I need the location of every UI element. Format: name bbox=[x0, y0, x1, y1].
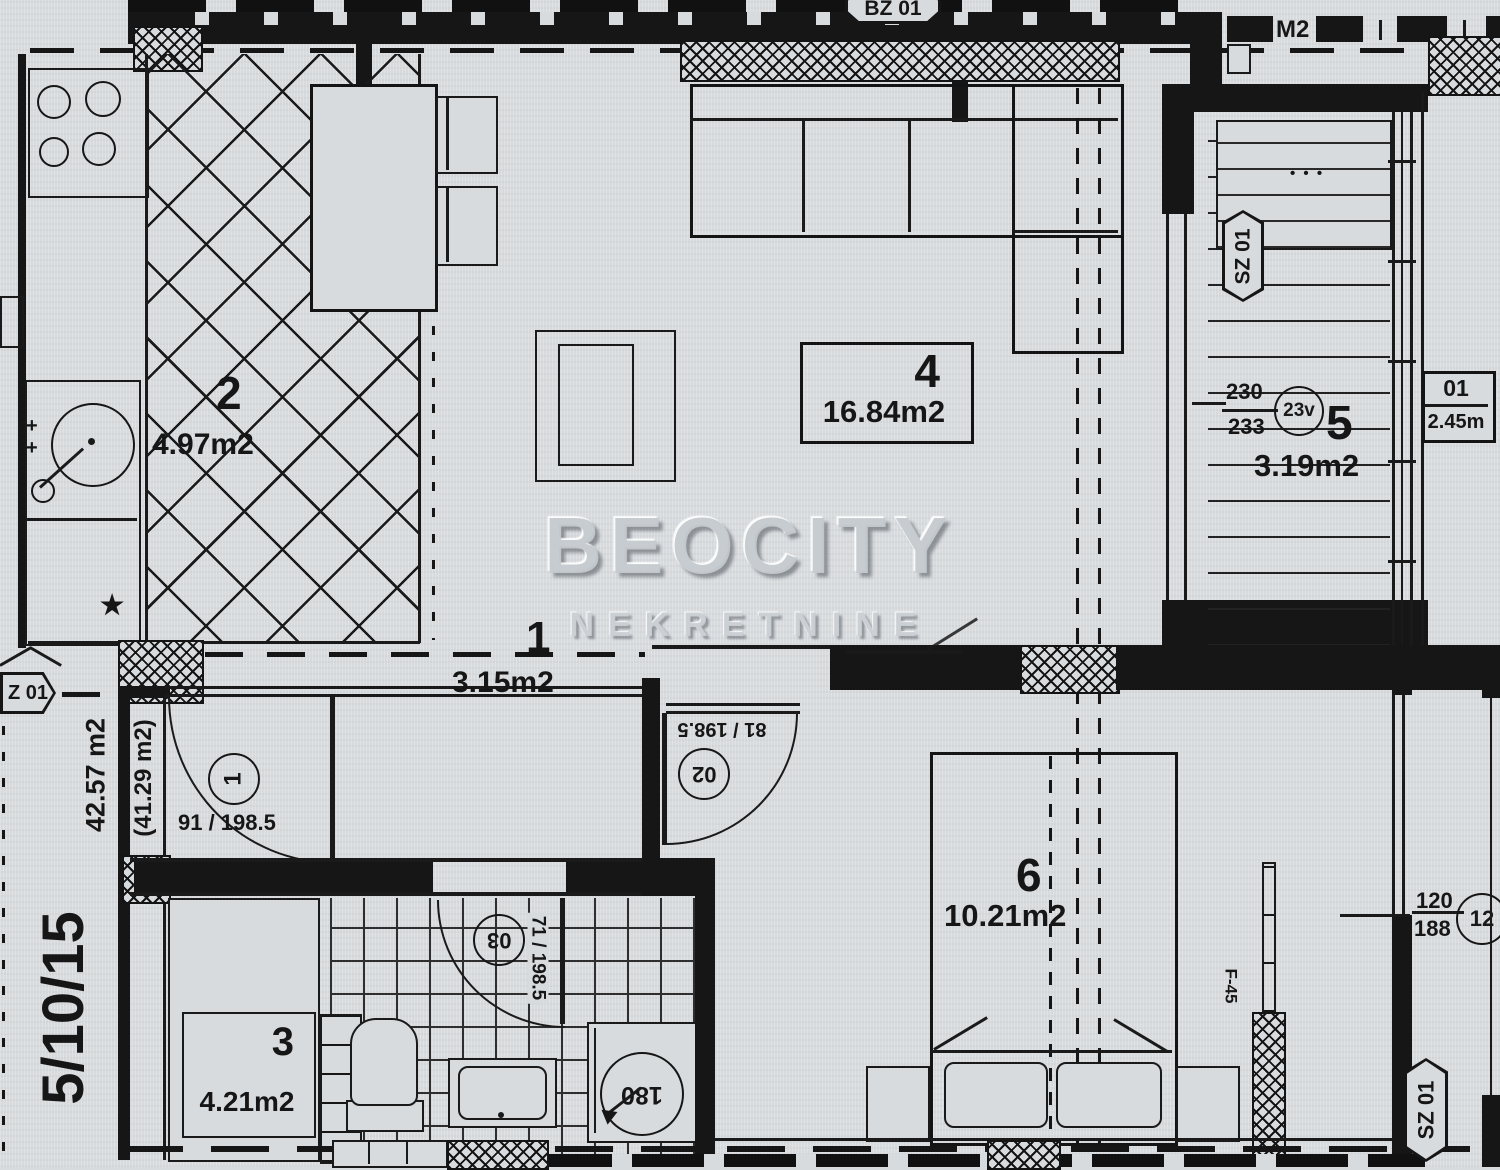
burner bbox=[39, 137, 69, 167]
unit-id: 5/10/15 bbox=[35, 911, 93, 1105]
wall-segment bbox=[642, 678, 660, 862]
hallway-area: 3.15m2 bbox=[452, 668, 554, 698]
kitchen-area: 4.97m2 bbox=[152, 430, 254, 460]
terrace-window-height: 233 bbox=[1228, 416, 1265, 438]
insulation-hatch bbox=[1428, 36, 1500, 96]
coffee-table-inner bbox=[558, 344, 634, 466]
section-dash-line-bottom bbox=[125, 1146, 1470, 1152]
insulation-hatch bbox=[447, 1140, 549, 1170]
terrace-dim-box-id: 01 bbox=[1422, 377, 1490, 400]
dash-wall bbox=[1316, 16, 1363, 42]
watermark-underline bbox=[845, 650, 963, 654]
chair-back bbox=[446, 186, 449, 262]
wall-segment bbox=[1116, 645, 1500, 690]
unit-total-area: 42.57 m2 bbox=[83, 718, 110, 832]
window-tick bbox=[1388, 460, 1416, 463]
insulation-hatch bbox=[680, 40, 1120, 82]
wall-segment bbox=[1482, 645, 1500, 698]
window-tag-sz01-terrace-label: SZ 01 bbox=[1233, 228, 1254, 284]
window-tag-z01-label: Z 01 bbox=[8, 683, 48, 703]
entry-mark bbox=[29, 646, 62, 667]
watermark-brand: BEOCITY bbox=[400, 500, 1100, 592]
window-tag-z01: Z 01 bbox=[0, 672, 56, 714]
leader-line bbox=[1192, 402, 1226, 405]
entry-mark bbox=[0, 646, 32, 667]
window-tag-bz01-label: BZ 01 bbox=[864, 0, 921, 19]
insulation-hatch bbox=[987, 1140, 1061, 1170]
window-tag-sz01-bedroom: SZ 01 bbox=[1404, 1058, 1448, 1162]
window-line bbox=[1402, 695, 1405, 915]
toilet-bowl bbox=[350, 1018, 418, 1106]
window-tick bbox=[1388, 260, 1416, 263]
shower-drain-label: 180 bbox=[621, 1082, 663, 1107]
terrace-glazing bbox=[1166, 214, 1169, 602]
chair-back bbox=[446, 96, 449, 170]
nightstand bbox=[866, 1066, 930, 1142]
pillow bbox=[944, 1062, 1048, 1128]
line bbox=[1424, 404, 1488, 407]
boundary-dash-line bbox=[2, 700, 5, 1160]
window-tick bbox=[1388, 560, 1416, 563]
entry-door-dim: 91 / 198.5 bbox=[178, 812, 276, 834]
symbol-star: ★ bbox=[100, 592, 124, 619]
bench-dots: • • • bbox=[1290, 166, 1324, 181]
bathroom-door-leaf bbox=[560, 898, 565, 1024]
pillow bbox=[1056, 1062, 1162, 1128]
terrace-wall bbox=[1162, 84, 1194, 214]
radiator bbox=[1262, 862, 1276, 1014]
bathroom-door-circle: 03 bbox=[473, 914, 525, 966]
wall-hatch-strip bbox=[1252, 1012, 1286, 1164]
window-tick bbox=[1388, 160, 1416, 163]
wall-line bbox=[130, 892, 662, 896]
window-line bbox=[1401, 112, 1403, 645]
fraction-line bbox=[1222, 409, 1278, 412]
unit-reduced-area: (41.29 m2) bbox=[132, 719, 156, 836]
sink-drain bbox=[498, 1112, 504, 1118]
terrace-window-circle: 23v bbox=[1274, 386, 1324, 436]
hallway-number: 1 bbox=[526, 616, 550, 660]
terrace-window-width: 230 bbox=[1226, 381, 1263, 403]
window-tick bbox=[1388, 360, 1416, 363]
bedroom-window-height: 188 bbox=[1414, 918, 1451, 940]
kitchen-number: 2 bbox=[216, 370, 242, 416]
line bbox=[594, 1028, 596, 1133]
faucet-dot bbox=[88, 438, 95, 445]
hallway-dash-line bbox=[205, 652, 645, 657]
rail-line bbox=[1421, 92, 1424, 645]
symbol-plus: + bbox=[26, 416, 38, 436]
bedroom-window-circle: 12 bbox=[1456, 893, 1500, 945]
living-area: 16.84m2 bbox=[800, 396, 968, 427]
sofa-cushion-line bbox=[908, 118, 911, 232]
bedroom-door-leaf bbox=[662, 713, 667, 845]
nightstand bbox=[1176, 1066, 1240, 1142]
wall-segment bbox=[118, 688, 130, 1160]
symbol-plus: + bbox=[26, 438, 38, 458]
bathroom-number: 3 bbox=[182, 1022, 294, 1062]
sofa-chaise bbox=[1012, 84, 1124, 354]
terrace-number: 5 bbox=[1326, 400, 1353, 448]
shaft-box bbox=[0, 296, 24, 348]
window-tag-sz01-terrace: SZ 01 bbox=[1222, 210, 1264, 302]
dining-table bbox=[310, 84, 438, 312]
wall-segment-bottom bbox=[448, 1154, 1425, 1167]
watermark: BEOCITY NEKRETNINE bbox=[400, 500, 1100, 645]
top-right-label: M2 bbox=[1276, 18, 1309, 42]
dash-wall bbox=[1227, 16, 1273, 42]
bedroom-window-width: 120 bbox=[1416, 890, 1453, 912]
window-line bbox=[1392, 112, 1395, 645]
line bbox=[145, 54, 148, 643]
line bbox=[368, 1140, 370, 1164]
insulation-hatch bbox=[1020, 645, 1120, 694]
wall-segment bbox=[695, 858, 715, 1160]
bedroom-door-circle: 02 bbox=[678, 748, 730, 800]
section-dash-line-top bbox=[128, 0, 1190, 12]
wall-segment bbox=[1392, 645, 1412, 695]
bathroom-area: 4.21m2 bbox=[184, 1088, 310, 1116]
kitchen-sink bbox=[51, 403, 135, 487]
counter-line bbox=[25, 518, 137, 521]
shower-drain-circle: 180 bbox=[600, 1052, 684, 1136]
bathroom-door-circle-label: 03 bbox=[487, 929, 511, 951]
window-line bbox=[1410, 112, 1413, 645]
burner bbox=[82, 132, 116, 166]
window-line bbox=[1392, 695, 1395, 915]
bathroom-door-dim: 71 / 198.5 bbox=[528, 913, 549, 1004]
window-tag-sz01-bedroom-label: SZ 01 bbox=[1415, 1081, 1437, 1140]
terrace-wall bbox=[1162, 84, 1428, 112]
terrace-area: 3.19m2 bbox=[1254, 450, 1359, 481]
door-head-line bbox=[165, 686, 660, 689]
line bbox=[406, 1140, 408, 1164]
terrace-window-circle-label: 23v bbox=[1283, 400, 1315, 422]
leader-line bbox=[1340, 914, 1410, 917]
door-head-line bbox=[666, 703, 800, 706]
wall-segment bbox=[134, 862, 433, 892]
sofa-cushion-line bbox=[802, 118, 805, 232]
terrace-glazing bbox=[1184, 214, 1187, 602]
line bbox=[652, 645, 832, 649]
line bbox=[163, 698, 166, 1160]
burner bbox=[37, 85, 71, 119]
terrace-dim-box-width: 2.45m bbox=[1422, 412, 1490, 432]
bedroom-door-circle-label: 02 bbox=[692, 763, 716, 785]
watermark-subtitle: NEKRETNINE bbox=[400, 606, 1100, 645]
radiator-label: F-45 bbox=[1223, 969, 1240, 1004]
burner bbox=[85, 81, 121, 117]
bottom-cells bbox=[332, 1140, 448, 1168]
rail-post bbox=[1227, 44, 1251, 74]
bed-center-line bbox=[1049, 756, 1052, 1138]
blanket-line bbox=[930, 1050, 1172, 1053]
line bbox=[28, 641, 420, 644]
window-tag-bz01: BZ 01 bbox=[845, 0, 941, 24]
tick bbox=[1379, 20, 1382, 40]
living-number: 4 bbox=[800, 348, 940, 394]
entry-door-circle-label: 1 bbox=[222, 772, 246, 785]
sofa-cushion-line bbox=[1012, 230, 1118, 233]
entry-door-leaf bbox=[330, 697, 335, 860]
bedroom-window-circle-label: 12 bbox=[1470, 906, 1494, 932]
bedroom-number: 6 bbox=[1016, 852, 1042, 898]
wall-segment bbox=[1482, 1095, 1500, 1167]
wall-notches bbox=[140, 12, 1180, 25]
bedroom-area: 10.21m2 bbox=[944, 900, 1066, 931]
bedroom-door-dim: 81 / 198.5 bbox=[678, 719, 767, 739]
floor-plan: BZ 01 M2 + + ★ 2 4.97m2 4 bbox=[0, 0, 1500, 1167]
entry-door-circle: 1 bbox=[208, 753, 260, 805]
